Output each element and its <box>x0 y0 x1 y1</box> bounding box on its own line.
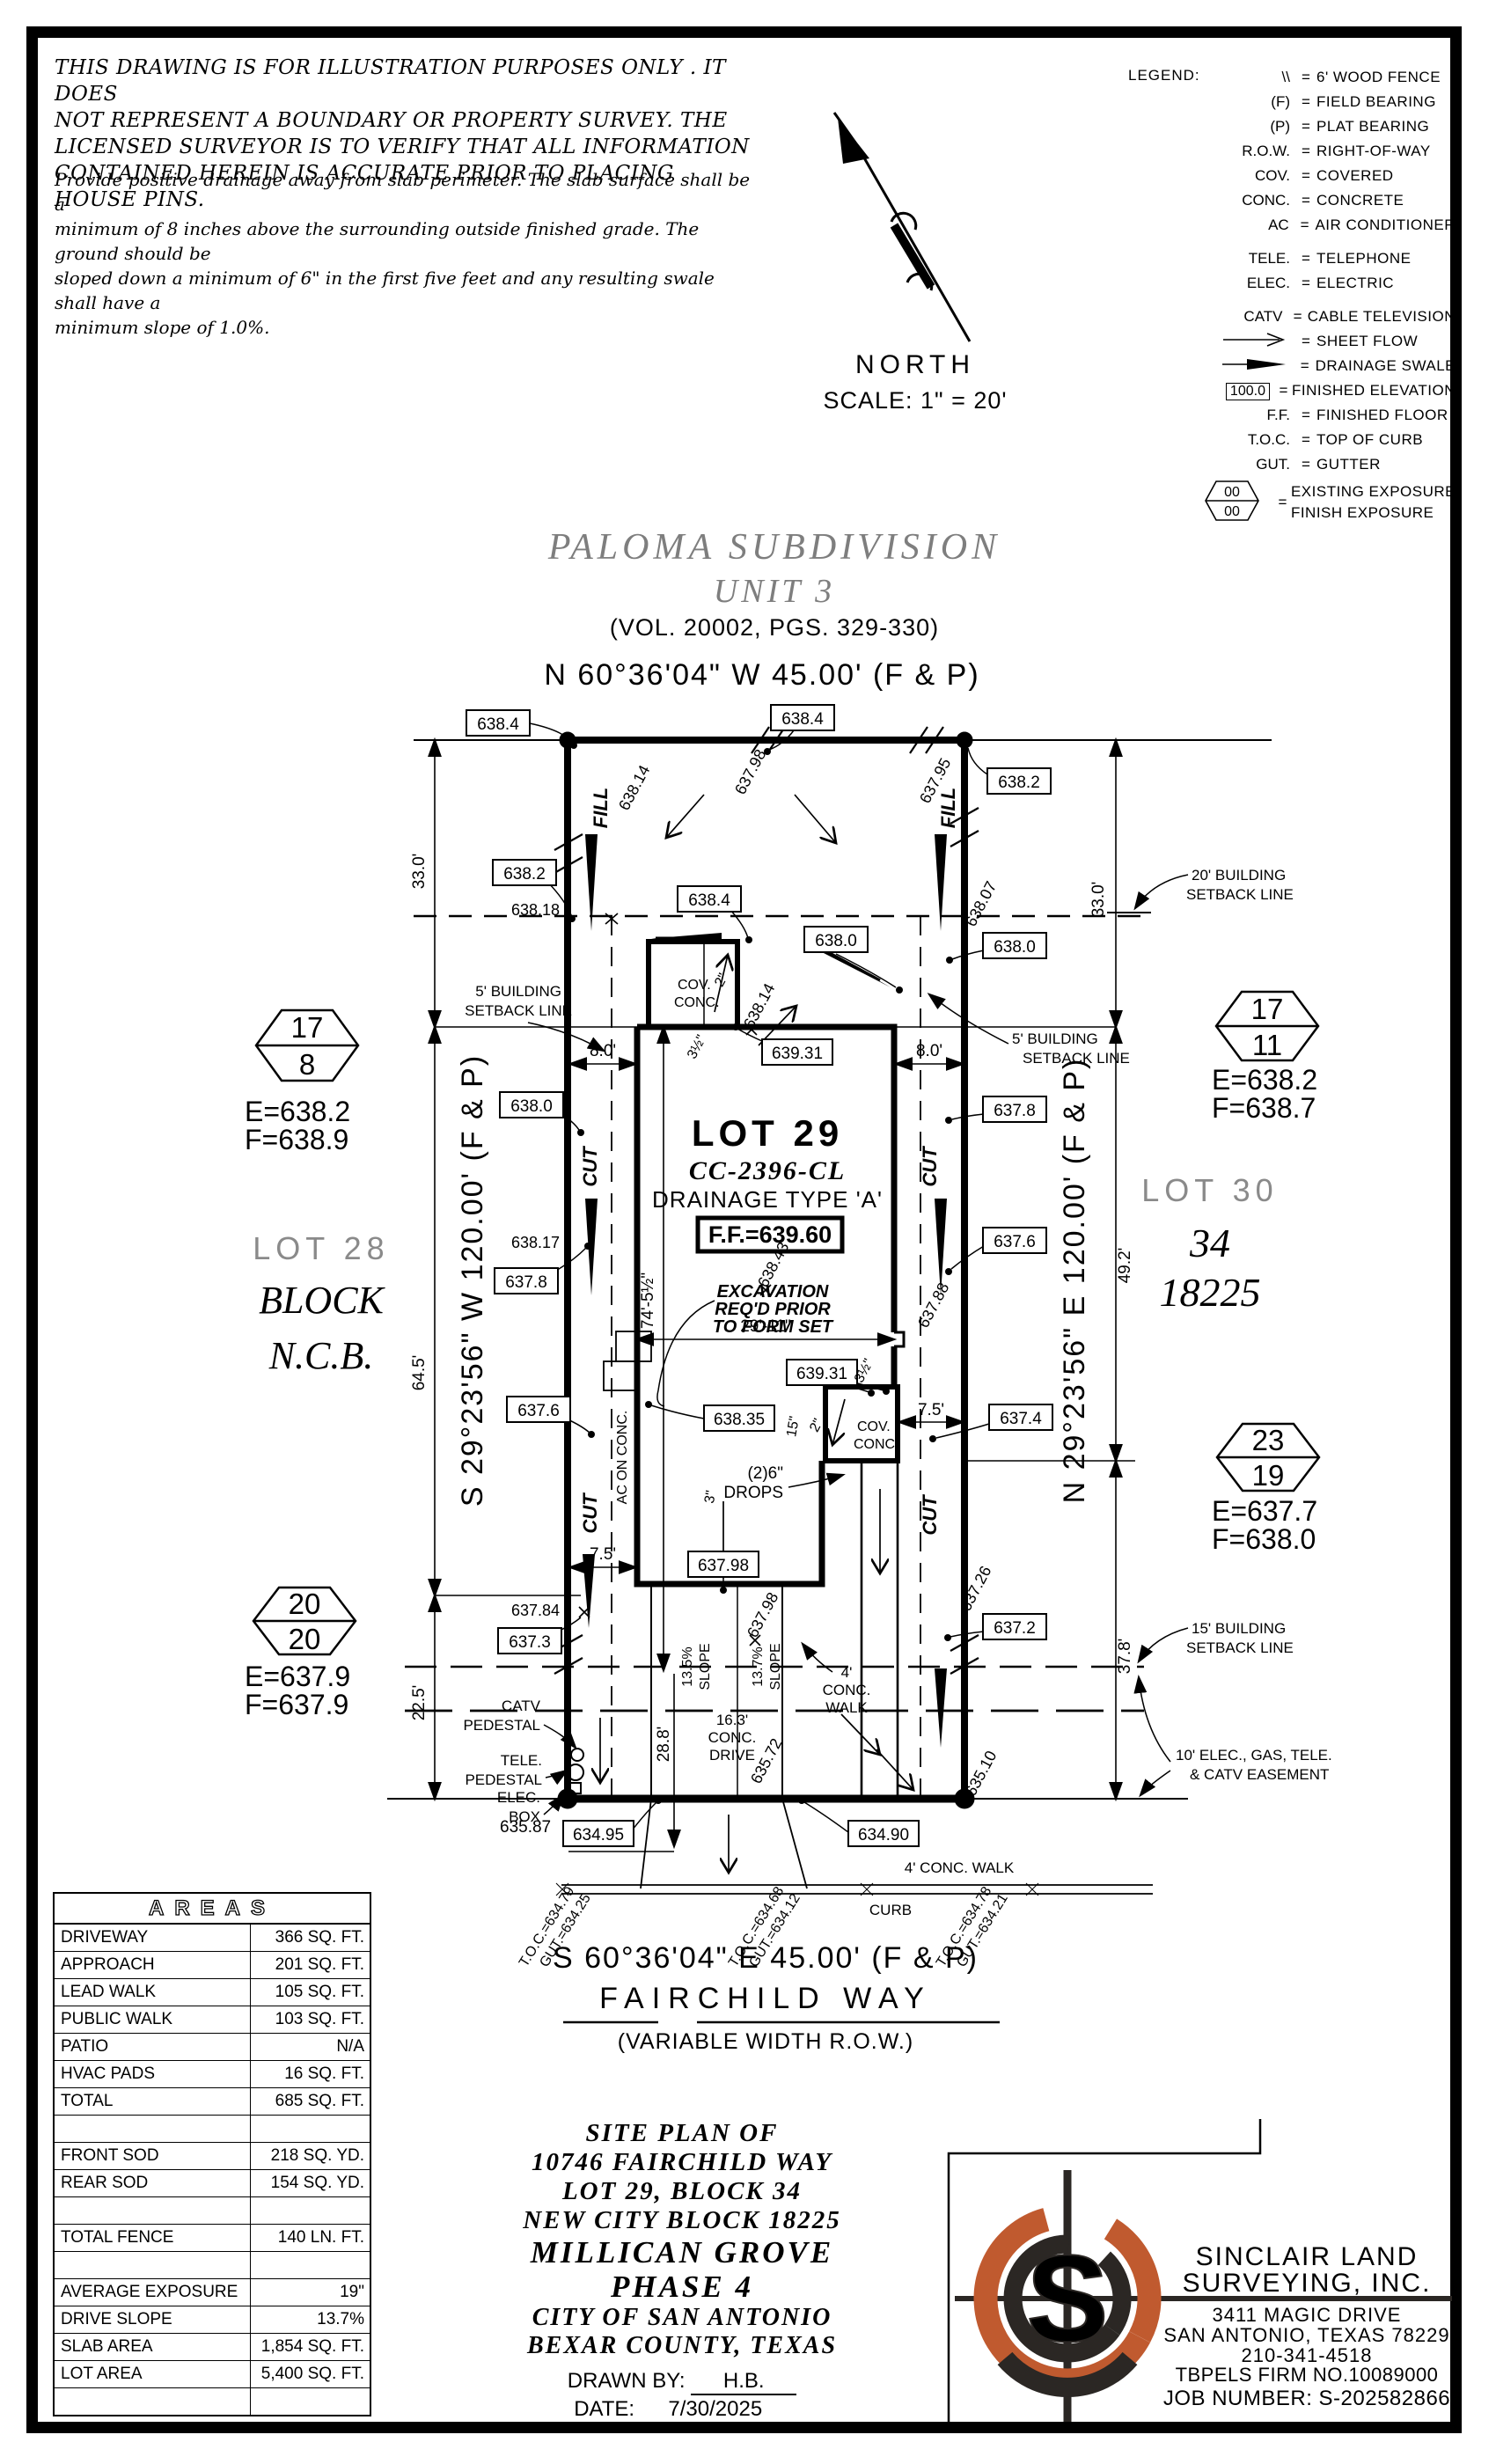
marker-17-8-finish: F=638.9 <box>245 1124 348 1155</box>
svg-text:23: 23 <box>1252 1424 1285 1456</box>
svg-text:28.8': 28.8' <box>655 1727 673 1763</box>
svg-text:637.6: 637.6 <box>994 1233 1036 1251</box>
svg-text:TELE.: TELE. <box>501 1752 542 1769</box>
svg-text:638.35: 638.35 <box>714 1411 765 1429</box>
svg-text:17: 17 <box>291 1011 324 1044</box>
svg-text:638.0: 638.0 <box>994 938 1036 957</box>
table-row: PUBLIC WALK103 SQ. FT. <box>55 2006 370 2034</box>
svg-text:CUT: CUT <box>919 1146 941 1187</box>
svg-text:COV.: COV. <box>857 1419 891 1434</box>
table-row: DRIVEWAY366 SQ. FT. <box>55 1925 370 1952</box>
svg-text:F.F.=639.60: F.F.=639.60 <box>708 1221 832 1248</box>
svg-text:TO FORM SET: TO FORM SET <box>713 1317 834 1337</box>
svg-text:638.0: 638.0 <box>510 1097 553 1116</box>
walk-label: 4' CONC. WALK <box>905 1859 1015 1876</box>
county-line: BEXAR COUNTY, TEXAS <box>480 2332 884 2360</box>
svg-text:638.17: 638.17 <box>511 1234 560 1251</box>
svg-text:AC ON CONC.: AC ON CONC. <box>615 1411 630 1505</box>
svg-text:638.2: 638.2 <box>503 865 546 884</box>
marker-17-11-existing: E=638.2 <box>1212 1064 1317 1096</box>
svg-text:CATV: CATV <box>502 1698 541 1714</box>
svg-text:22.5': 22.5' <box>410 1685 429 1721</box>
lot-number: LOT 29 <box>692 1112 843 1154</box>
svg-text:8: 8 <box>299 1048 315 1081</box>
city-line: CITY OF SAN ANTONIO <box>480 2304 884 2332</box>
svg-text:37.8': 37.8' <box>1116 1639 1134 1675</box>
svg-text:20' BUILDING: 20' BUILDING <box>1192 867 1286 884</box>
table-row: LOT AREA5,400 SQ. FT. <box>55 2361 370 2388</box>
public-walk <box>556 1883 1153 2022</box>
svg-text:FILL: FILL <box>590 788 612 828</box>
exposure-marker-20-20: 20 20 <box>253 1588 356 1655</box>
plan-code: CC-2396-CL <box>689 1156 846 1185</box>
svg-text:CUT: CUT <box>579 1146 601 1187</box>
table-row: REAR SOD154 SQ. YD. <box>55 2170 370 2197</box>
toc-gut-labels: T.O.C.=634.79GUT.=634.25 T.O.C.=634.68GU… <box>517 1882 1011 1979</box>
table-row: TOTAL FENCE140 LN. FT. <box>55 2225 370 2252</box>
svg-text:638.4: 638.4 <box>688 891 730 910</box>
svg-text:20: 20 <box>289 1588 321 1620</box>
bearing-west-line: S 29°23'56" W 120.00' (F & P) <box>456 1054 489 1507</box>
table-row: FRONT SOD218 SQ. YD. <box>55 2143 370 2170</box>
areas-table: AREAS DRIVEWAY366 SQ. FT. APPROACH201 SQ… <box>53 1892 371 2416</box>
excavation-note: EXCAVATION REQ'D PRIOR TO FORM SET <box>657 1282 834 1406</box>
title-block: SITE PLAN OF 10746 FAIRCHILD WAY LOT 29,… <box>480 2119 884 2424</box>
svg-text:REQ'D PRIOR: REQ'D PRIOR <box>715 1300 831 1319</box>
table-row: LEAD WALK105 SQ. FT. <box>55 1979 370 2006</box>
svg-text:20: 20 <box>289 1623 321 1655</box>
svg-text:33.0': 33.0' <box>410 854 429 890</box>
svg-text:638.0: 638.0 <box>815 932 857 950</box>
phase-line: PHASE 4 <box>480 2270 884 2304</box>
svg-text:634.90: 634.90 <box>858 1826 909 1844</box>
svg-text:74'-5½": 74'-5½" <box>639 1272 657 1329</box>
svg-text:5' BUILDING: 5' BUILDING <box>475 983 561 1000</box>
svg-text:3": 3" <box>702 1490 719 1505</box>
svg-text:5' BUILDING: 5' BUILDING <box>1012 1030 1098 1047</box>
north-arrow-icon <box>834 113 970 341</box>
svg-text:10' ELEC., GAS, TELE.: 10' ELEC., GAS, TELE. <box>1176 1747 1332 1764</box>
table-row: TOTAL685 SQ. FT. <box>55 2088 370 2116</box>
table-row <box>55 2252 370 2279</box>
date-row: DATE: 7/30/2025 <box>480 2397 884 2424</box>
svg-text:15' BUILDING: 15' BUILDING <box>1192 1620 1286 1637</box>
table-row: AVERAGE EXPOSURE19" <box>55 2279 370 2306</box>
svg-text:637.2: 637.2 <box>994 1619 1036 1638</box>
marker-23-19-finish: F=638.0 <box>1212 1523 1316 1555</box>
svg-text:4': 4' <box>841 1664 853 1681</box>
drawn-by-value: H.B. <box>691 2369 796 2395</box>
surveyor-name-line1: SINCLAIR LAND <box>1162 2242 1452 2272</box>
svg-text:637.6: 637.6 <box>517 1402 560 1420</box>
drawn-by-row: DRAWN BY: H.B. <box>480 2369 884 2395</box>
svg-text:BOX: BOX <box>509 1808 540 1825</box>
svg-text:7.5': 7.5' <box>918 1401 944 1419</box>
svg-text:639.31: 639.31 <box>772 1045 823 1063</box>
svg-text:634.95: 634.95 <box>573 1826 624 1844</box>
new-city-block-line: NEW CITY BLOCK 18225 <box>480 2206 884 2235</box>
bearing-east-line: N 29°23'56" E 120.00' (F & P) <box>1058 1058 1091 1504</box>
svg-text:CONC.: CONC. <box>854 1437 899 1452</box>
svg-text:638.4: 638.4 <box>477 715 519 734</box>
exposure-marker-17-8: 17 8 <box>256 1010 358 1081</box>
svg-text:& CATV EASEMENT: & CATV EASEMENT <box>1190 1766 1329 1783</box>
svg-text:3½": 3½" <box>685 1033 709 1062</box>
table-row: DRIVE SLOPE13.7% <box>55 2306 370 2334</box>
finished-floor-box: F.F.=639.60 <box>698 1218 842 1251</box>
svg-text:638.18: 638.18 <box>511 901 560 919</box>
svg-text:SETBACK LINE: SETBACK LINE <box>1186 1639 1294 1656</box>
svg-text:638.14: 638.14 <box>615 762 654 813</box>
svg-text:638.14: 638.14 <box>740 980 779 1031</box>
svg-text:DROPS: DROPS <box>723 1484 783 1502</box>
svg-text:S: S <box>1026 2229 1108 2367</box>
svg-text:CONC.: CONC. <box>708 1729 757 1746</box>
svg-text:(2)6": (2)6" <box>747 1464 783 1483</box>
svg-text:CUT: CUT <box>919 1494 941 1536</box>
svg-text:19: 19 <box>1252 1459 1285 1492</box>
table-row: SLAB AREA1,854 SQ. FT. <box>55 2334 370 2361</box>
svg-text:CONC.: CONC. <box>674 995 720 1010</box>
site-address: 10746 FAIRCHILD WAY <box>480 2148 884 2177</box>
svg-text:SETBACK LINE: SETBACK LINE <box>465 1002 572 1019</box>
marker-17-8-existing: E=638.2 <box>245 1096 350 1127</box>
title-line: SITE PLAN OF <box>480 2119 884 2148</box>
table-row: APPROACH201 SQ. FT. <box>55 1952 370 1979</box>
date-value: 7/30/2025 <box>641 2397 790 2424</box>
svg-text:FILL: FILL <box>937 788 959 828</box>
svg-text:16.3': 16.3' <box>716 1712 748 1728</box>
svg-text:49.2': 49.2' <box>1116 1248 1134 1284</box>
exposure-marker-17-11: 17 11 <box>1216 992 1318 1061</box>
exposure-marker-23-19: 23 19 <box>1217 1424 1319 1492</box>
svg-text:CUT: CUT <box>579 1492 601 1534</box>
svg-text:SLOPE: SLOPE <box>698 1643 713 1690</box>
svg-text:SETBACK LINE: SETBACK LINE <box>1023 1050 1130 1067</box>
svg-text:637.8: 637.8 <box>994 1102 1036 1120</box>
svg-text:13.7%: 13.7% <box>751 1646 766 1686</box>
svg-text:PEDESTAL: PEDESTAL <box>465 1771 542 1788</box>
svg-text:637.98: 637.98 <box>731 746 770 797</box>
svg-text:WALK: WALK <box>825 1699 868 1716</box>
svg-text:637.98: 637.98 <box>744 1589 782 1640</box>
marker-20-20-finish: F=637.9 <box>245 1689 348 1720</box>
svg-text:ELEC.: ELEC. <box>497 1789 540 1806</box>
areas-table-title: AREAS <box>55 1894 370 1925</box>
subdivision-line: MILLICAN GROVE <box>480 2235 884 2270</box>
svg-text:11: 11 <box>1252 1029 1282 1061</box>
svg-text:SETBACK LINE: SETBACK LINE <box>1186 886 1294 903</box>
marker-23-19-existing: E=637.7 <box>1212 1495 1317 1527</box>
svg-text:PEDESTAL: PEDESTAL <box>463 1717 540 1734</box>
svg-text:637.84: 637.84 <box>511 1602 560 1619</box>
marker-20-20-existing: E=637.9 <box>245 1661 350 1692</box>
svg-text:637.3: 637.3 <box>509 1633 551 1652</box>
svg-text:2": 2" <box>712 971 731 989</box>
svg-text:637.98: 637.98 <box>698 1557 749 1575</box>
survey-sheet: THIS DRAWING IS FOR ILLUSTRATION PURPOSE… <box>0 0 1496 2464</box>
svg-text:33.0': 33.0' <box>1089 882 1108 918</box>
svg-text:638.2: 638.2 <box>998 774 1040 792</box>
svg-text:639.31: 639.31 <box>796 1365 847 1383</box>
svg-text:637.8: 637.8 <box>505 1273 547 1292</box>
svg-text:64.5': 64.5' <box>410 1355 429 1391</box>
table-row <box>55 2197 370 2225</box>
drainage-type: DRAINAGE TYPE 'A' <box>652 1186 883 1213</box>
svg-text:17: 17 <box>1251 993 1284 1025</box>
curb-label: CURB <box>869 1902 912 1918</box>
svg-text:15": 15" <box>784 1415 803 1438</box>
table-row <box>55 2388 370 2415</box>
svg-text:EXCAVATION: EXCAVATION <box>717 1282 829 1302</box>
svg-text:SLOPE: SLOPE <box>768 1643 783 1690</box>
lot-block-line: LOT 29, BLOCK 34 <box>480 2177 884 2206</box>
table-row: HVAC PADS16 SQ. FT. <box>55 2061 370 2088</box>
marker-17-11-finish: F=638.7 <box>1212 1092 1316 1124</box>
surveyor-name-line2: SURVEYING, INC. <box>1162 2269 1452 2299</box>
svg-text:DRIVE: DRIVE <box>709 1747 755 1764</box>
svg-text:638.4: 638.4 <box>781 710 824 729</box>
svg-text:COV.: COV. <box>678 978 711 993</box>
job-number: JOB NUMBER: S-202582866 <box>1153 2387 1461 2411</box>
svg-text:8.0': 8.0' <box>916 1042 942 1060</box>
svg-text:CONC.: CONC. <box>823 1682 871 1698</box>
svg-text:637.4: 637.4 <box>1000 1410 1042 1428</box>
svg-text:13.5%: 13.5% <box>680 1646 695 1686</box>
table-row <box>55 2116 370 2143</box>
table-row: PATION/A <box>55 2034 370 2061</box>
surveyor-firm-number: TBPELS FIRM NO.10089000 <box>1162 2364 1452 2387</box>
